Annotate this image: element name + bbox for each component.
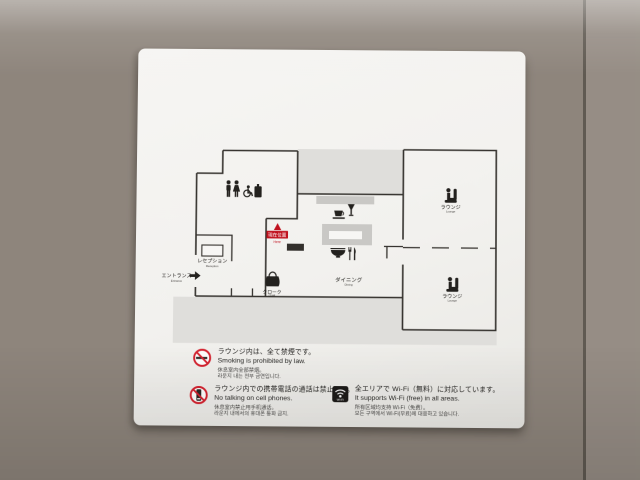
armchair-icon bbox=[446, 277, 458, 292]
marker-triangle-icon bbox=[274, 223, 281, 230]
no-smoking-icon bbox=[193, 348, 212, 367]
cutlery-icon bbox=[348, 247, 355, 260]
wifi-icon-label: Wi-Fi bbox=[337, 398, 344, 402]
armchair-icon bbox=[445, 188, 457, 203]
smoking-line-ko: 라운지 내는 전부 금연입니다. bbox=[217, 373, 315, 380]
notice-no-phone: ラウンジ内での携帯電話の通話は禁止です。 No talking on cell … bbox=[189, 385, 354, 418]
photo-of-floor-map-sign: { "sign": { "map": { "marker": { "jp": "… bbox=[0, 0, 640, 480]
mens-toilet-icon bbox=[226, 180, 230, 197]
notice-no-smoking: ラウンジ内は、全て禁煙です。 Smoking is prohibited by … bbox=[192, 348, 315, 380]
counter bbox=[316, 196, 374, 204]
cloak-label-en: Cloak bbox=[269, 293, 276, 297]
multipurpose-toilet-icon bbox=[254, 184, 261, 197]
service-counter bbox=[287, 244, 304, 251]
lounge-lower-label-en: Lounge bbox=[448, 299, 458, 303]
reception: レセプション Reception bbox=[197, 258, 227, 268]
entrance: エントランス Entrance bbox=[161, 271, 200, 283]
wifi-line-en: It supports Wi-Fi (free) in all areas. bbox=[355, 394, 500, 403]
bag-icon bbox=[266, 272, 280, 286]
womens-toilet-icon bbox=[233, 180, 240, 197]
lounge-divider-dashed bbox=[403, 248, 496, 249]
wifi-icon: Wi-Fi bbox=[332, 386, 349, 403]
reception-desk bbox=[202, 245, 223, 256]
marker-label-en: Here bbox=[273, 240, 280, 244]
wine-glass-icon bbox=[348, 204, 355, 216]
no-cellphone-icon bbox=[189, 385, 208, 404]
floor-plan: 現在位置 Here エントランス Entrance レセプション Recepti… bbox=[160, 143, 507, 346]
wifi-line-ko: 모든 구역에서 Wi-Fi(무료)에 대응하고 있습니다. bbox=[355, 411, 500, 418]
smoking-line-jp: ラウンジ内は、全て禁煙です。 bbox=[218, 348, 316, 357]
current-location-marker: 現在位置 Here bbox=[266, 223, 288, 244]
lounge-upper: ラウンジ Lounge bbox=[441, 188, 461, 214]
wheelchair-icon bbox=[244, 185, 253, 196]
sign-panel: 現在位置 Here エントランス Entrance レセプション Recepti… bbox=[134, 49, 526, 429]
lounge-lower: ラウンジ Lounge bbox=[442, 277, 462, 303]
lounge-upper-label-en: Lounge bbox=[446, 210, 456, 214]
bowl-icon bbox=[330, 248, 345, 258]
notice-wifi: Wi-Fi 全エリアで Wi-Fi（無料）に対応しています。 It suppor… bbox=[332, 386, 500, 419]
wall-panel-right bbox=[586, 0, 640, 480]
reception-label-en: Reception bbox=[206, 264, 219, 268]
restroom-icons bbox=[226, 180, 261, 197]
dining-label-en: Dining bbox=[345, 283, 353, 287]
dining: ダイニング Dining bbox=[330, 204, 363, 287]
coffee-cup-icon bbox=[333, 211, 345, 219]
entrance-label-en: Entrance bbox=[171, 279, 183, 283]
dining-furniture bbox=[287, 196, 374, 252]
smoking-line-en: Smoking is prohibited by law. bbox=[218, 357, 316, 366]
